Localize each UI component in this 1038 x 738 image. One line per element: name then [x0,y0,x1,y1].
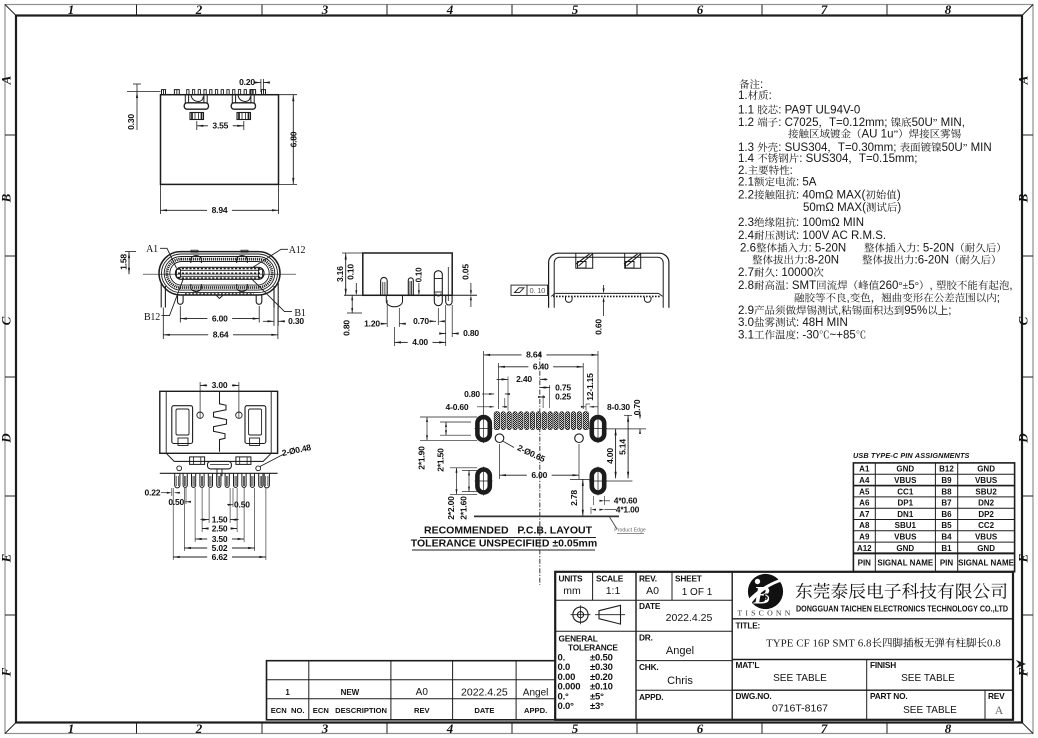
svg-text:E: E [0,553,14,563]
svg-text:VBUS: VBUS [975,476,998,485]
svg-text:4: 4 [446,2,454,17]
svg-text:整体拔出力:6-20N（耐久后）: 整体拔出力:6-20N（耐久后） [862,253,1002,268]
svg-text:8.94: 8.94 [212,205,228,215]
svg-text:C: C [1016,316,1031,325]
svg-text:1 OF 1: 1 OF 1 [682,587,713,598]
svg-text:A12: A12 [857,544,872,553]
svg-text:0.10: 0.10 [346,264,356,280]
svg-text:A1: A1 [859,465,870,474]
svg-text:PIN: PIN [940,559,954,568]
svg-text:SBU1: SBU1 [895,521,917,530]
svg-text:B: B [1016,193,1031,203]
svg-text:6.62: 6.62 [212,552,228,562]
svg-text:4.00: 4.00 [412,337,428,347]
svg-text:mm: mm [563,585,581,597]
svg-text:GND: GND [977,465,995,474]
svg-text:4.00: 4.00 [605,448,615,464]
svg-text:TOLERANCE: TOLERANCE [568,643,618,653]
svg-text:VBUS: VBUS [894,476,917,485]
svg-text:B6: B6 [941,510,952,519]
svg-text:Product Edge: Product Edge [614,528,646,534]
svg-text:50mΩ MAX(测试后): 50mΩ MAX(测试后) [803,200,901,215]
svg-text:A9: A9 [859,533,870,542]
svg-text:1.20: 1.20 [364,319,380,329]
svg-text:0.80: 0.80 [342,320,352,336]
svg-text:APPD.: APPD. [524,706,547,715]
svg-text:B1: B1 [941,544,952,553]
svg-text:DN2: DN2 [978,499,995,508]
svg-text:2.40: 2.40 [516,374,532,384]
svg-text:A0: A0 [646,585,659,597]
svg-text:GND: GND [896,544,914,553]
svg-text:6.00: 6.00 [531,470,547,480]
svg-text:B9: B9 [941,476,952,485]
svg-text:0.25: 0.25 [555,392,571,402]
svg-text:CHK.: CHK. [639,662,658,672]
svg-text:6.40: 6.40 [533,362,549,372]
svg-text:DR.: DR. [639,633,653,643]
svg-text:8: 8 [945,721,952,736]
svg-text:0.05: 0.05 [460,264,470,280]
svg-text:VBUS: VBUS [894,533,917,542]
svg-text:0.80: 0.80 [463,328,479,338]
svg-text:1:1: 1:1 [606,585,621,597]
svg-text:Angel: Angel [666,645,694,657]
svg-text:0.50: 0.50 [168,497,184,507]
svg-text:B: B [0,193,14,203]
svg-text:3.55: 3.55 [212,121,228,131]
svg-text:3.16: 3.16 [335,266,345,282]
svg-text:B4: B4 [941,533,952,542]
svg-text:CC2: CC2 [978,521,995,530]
svg-text:0.70: 0.70 [413,316,429,326]
svg-text:F: F [0,667,14,677]
svg-text:DATE: DATE [474,706,494,715]
svg-text:A1: A1 [146,244,158,255]
svg-text:B12: B12 [939,465,954,474]
svg-text:0.50: 0.50 [234,500,250,510]
svg-text:4: 4 [446,721,454,736]
svg-text:2022.4.25: 2022.4.25 [666,612,713,624]
svg-text:REV: REV [988,691,1005,701]
svg-text:E: E [1016,553,1031,563]
svg-text:SIGNAL NAME: SIGNAL NAME [958,559,1015,568]
svg-text:SIGNAL NAME: SIGNAL NAME [877,559,934,568]
svg-text:8: 8 [945,2,952,17]
svg-text:7: 7 [821,2,828,17]
svg-text:A0: A0 [416,687,429,698]
svg-text:SEE TABLE: SEE TABLE [773,673,827,684]
svg-text:6.00: 6.00 [212,313,228,323]
svg-text:3: 3 [321,721,329,736]
svg-text:GND: GND [977,544,995,553]
svg-text:0.10: 0.10 [415,267,424,283]
svg-text:3: 3 [321,2,329,17]
svg-text:GND: GND [896,465,914,474]
svg-text:8.64: 8.64 [526,350,542,360]
svg-text:B5: B5 [941,521,952,530]
svg-text:CC1: CC1 [897,487,914,496]
svg-text:6: 6 [697,721,704,736]
svg-text:0.60: 0.60 [594,319,604,335]
svg-text:1: 1 [68,2,75,17]
svg-text:东莞泰辰电子科技有限公司: 东莞泰辰电子科技有限公司 [795,579,1008,604]
svg-text:2.78: 2.78 [569,490,579,506]
svg-text:D: D [1016,433,1031,444]
svg-text:1.58: 1.58 [119,254,129,270]
svg-text:Angel: Angel [523,688,549,699]
svg-text:s: s [762,589,769,604]
svg-text:SEE TABLE: SEE TABLE [903,705,957,716]
svg-text:B8: B8 [941,487,952,496]
svg-text:TOLERANCE UNSPECIFIED ±0.05mm: TOLERANCE UNSPECIFIED ±0.05mm [411,538,597,550]
svg-text:ECN DESCRIPTION: ECN DESCRIPTION [313,706,387,715]
svg-text:2*1.90: 2*1.90 [417,446,427,470]
svg-text:FINISH: FINISH [870,660,896,670]
svg-text:A8: A8 [859,521,870,530]
svg-text:0716T-8167: 0716T-8167 [772,703,828,715]
svg-text:2: 2 [195,2,203,17]
svg-text:VBUS: VBUS [975,533,998,542]
svg-text:A: A [995,705,1004,717]
svg-text:Chris: Chris [667,675,693,687]
svg-text:A5: A5 [859,487,870,496]
svg-text:0.22: 0.22 [145,488,161,498]
svg-text:MAT’L: MAT’L [736,660,760,670]
svg-text:2022.4.25: 2022.4.25 [461,687,508,699]
svg-text:RECOMMENDED P.C.B. LAYOUT: RECOMMENDED P.C.B. LAYOUT [424,525,593,537]
svg-text:SEE TABLE: SEE TABLE [901,673,955,684]
svg-text:PIN: PIN [858,559,872,568]
svg-text:REV: REV [414,706,431,715]
svg-text:2.50: 2.50 [212,523,228,533]
svg-text:A6: A6 [859,499,870,508]
svg-text:1.材质:: 1.材质: [738,88,772,103]
svg-text:TISCONN: TISCONN [737,609,793,618]
svg-text:0.20: 0.20 [239,77,255,87]
svg-text:ECN NO.: ECN NO. [271,706,305,715]
svg-text:A12: A12 [289,245,306,256]
svg-text:1: 1 [285,688,290,697]
svg-text:SHEET: SHEET [675,574,702,584]
svg-text:0.30: 0.30 [126,114,136,130]
svg-text:0.80: 0.80 [464,389,480,399]
svg-text:4-0.60: 4-0.60 [446,402,469,412]
svg-text:DWG.NO.: DWG.NO. [736,691,772,701]
svg-text:B7: B7 [941,499,952,508]
svg-text:4*1.00: 4*1.00 [616,504,640,514]
svg-text:12-1.15: 12-1.15 [585,373,595,401]
svg-text:USB TYPE-C PIN ASSIGNMENTS: USB TYPE-C PIN ASSIGNMENTS [853,451,970,460]
svg-text:SCALE: SCALE [596,574,624,584]
svg-text:TYPE CF 16P SMT 6.8长四脚插板无弹有柱脚长: TYPE CF 16P SMT 6.8长四脚插板无弹有柱脚长0.8 [766,636,1001,651]
svg-text:7: 7 [821,721,828,736]
svg-text:3.00: 3.00 [212,380,228,390]
svg-text:APPD.: APPD. [639,692,663,702]
svg-text:6.80: 6.80 [289,131,299,147]
svg-text:DONGGUAN TAICHEN ELECTRONICS T: DONGGUAN TAICHEN ELECTRONICS TECHNOLOGY … [796,605,1008,614]
svg-text:2*1.60: 2*1.60 [459,496,469,520]
svg-text:2*2.00: 2*2.00 [446,496,456,520]
svg-text:3.1工作温度: -30℃~+85℃: 3.1工作温度: -30℃~+85℃ [738,328,866,343]
svg-text:TITLE:: TITLE: [736,621,761,631]
svg-text:PART NO.: PART NO. [870,691,907,701]
svg-text:NEW: NEW [341,688,360,697]
svg-text:D: D [0,433,14,444]
svg-text:0.30: 0.30 [288,316,304,326]
svg-text:A: A [0,75,14,85]
svg-text:UNITS: UNITS [559,574,584,584]
svg-text:DN1: DN1 [897,510,914,519]
svg-text:5: 5 [572,2,579,17]
svg-text:SBU2: SBU2 [975,487,997,496]
svg-text:0. 10: 0. 10 [529,286,545,295]
svg-text:2: 2 [195,721,203,736]
svg-text:A7: A7 [859,510,870,519]
svg-text:8-0.30: 8-0.30 [607,402,630,412]
svg-text:5: 5 [572,721,579,736]
svg-text:DP2: DP2 [978,510,994,519]
svg-text:5.14: 5.14 [618,439,628,455]
svg-text:6: 6 [697,2,704,17]
svg-text:DP1: DP1 [898,499,914,508]
svg-text:B12: B12 [144,312,160,323]
svg-text:0.0°: 0.0° [558,701,575,712]
svg-text:F: F [1016,667,1031,677]
svg-text:A4: A4 [859,476,870,485]
svg-text:REV.: REV. [639,574,657,584]
svg-text:C: C [0,316,14,325]
svg-text:1: 1 [68,721,75,736]
svg-text:0.70: 0.70 [632,399,642,415]
svg-text:8.64: 8.64 [213,330,229,340]
svg-text:2*1.50: 2*1.50 [436,448,446,472]
svg-text:A: A [1016,75,1031,85]
svg-text:±3°: ±3° [590,701,604,712]
svg-text:DATE: DATE [639,601,661,611]
